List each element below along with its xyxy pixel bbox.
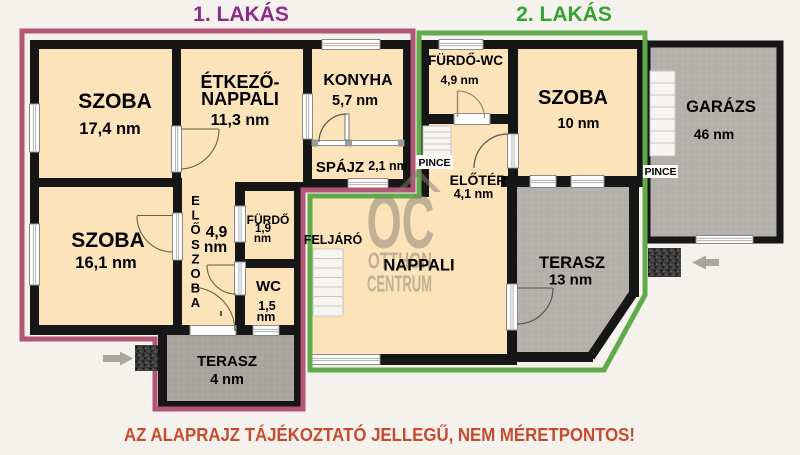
svg-text:PINCE: PINCE bbox=[644, 166, 676, 178]
svg-text:1. LAKÁS: 1. LAKÁS bbox=[193, 3, 289, 26]
svg-text:SZOBA: SZOBA bbox=[78, 90, 152, 113]
svg-text:SPÁJZ: SPÁJZ bbox=[316, 159, 364, 176]
svg-text:5,7 nm: 5,7 nm bbox=[332, 93, 378, 109]
svg-text:FÜRDŐ-WC: FÜRDŐ-WC bbox=[428, 53, 503, 68]
svg-text:nm: nm bbox=[204, 239, 227, 256]
svg-text:O: O bbox=[190, 266, 200, 281]
svg-text:TERASZ: TERASZ bbox=[197, 353, 257, 370]
svg-text:nm: nm bbox=[257, 310, 276, 324]
svg-text:AZ ALAPRAJZ TÁJÉKOZTATÓ JELLEG: AZ ALAPRAJZ TÁJÉKOZTATÓ JELLEGŰ, NEM MÉR… bbox=[124, 424, 635, 445]
svg-text:PINCE: PINCE bbox=[418, 157, 450, 169]
svg-text:11,3 nm: 11,3 nm bbox=[211, 112, 270, 129]
svg-text:NAPPALI: NAPPALI bbox=[201, 89, 279, 109]
svg-text:WC: WC bbox=[256, 278, 281, 295]
svg-text:16,1 nm: 16,1 nm bbox=[75, 254, 136, 272]
svg-text:4,9 nm: 4,9 nm bbox=[440, 73, 478, 87]
svg-text:17,4 nm: 17,4 nm bbox=[79, 120, 140, 138]
svg-text:GARÁZS: GARÁZS bbox=[686, 97, 756, 116]
svg-text:L: L bbox=[192, 208, 200, 223]
svg-text:ELŐTÉR: ELŐTÉR bbox=[450, 171, 507, 188]
svg-text:Z: Z bbox=[192, 251, 200, 266]
svg-text:4 nm: 4 nm bbox=[210, 372, 244, 388]
svg-text:TERASZ: TERASZ bbox=[539, 254, 605, 272]
svg-text:A: A bbox=[191, 295, 201, 310]
svg-text:10 nm: 10 nm bbox=[558, 116, 600, 132]
svg-text:Ő: Ő bbox=[190, 222, 200, 237]
svg-text:13 nm: 13 nm bbox=[549, 272, 592, 289]
svg-text:SZOBA: SZOBA bbox=[538, 87, 608, 109]
svg-text:2,1 nm: 2,1 nm bbox=[368, 159, 408, 173]
svg-text:SZOBA: SZOBA bbox=[71, 229, 145, 252]
svg-text:46 nm: 46 nm bbox=[694, 126, 734, 142]
svg-text:nm: nm bbox=[254, 233, 271, 245]
svg-text:FELJÁRÓ: FELJÁRÓ bbox=[304, 232, 363, 247]
svg-text:KONYHA: KONYHA bbox=[323, 72, 393, 89]
svg-text:B: B bbox=[191, 281, 200, 296]
svg-text:E: E bbox=[191, 193, 200, 208]
svg-text:4,1 nm: 4,1 nm bbox=[454, 187, 494, 201]
svg-text:S: S bbox=[191, 237, 200, 252]
svg-text:2. LAKÁS: 2. LAKÁS bbox=[516, 3, 612, 26]
svg-text:NAPPALI: NAPPALI bbox=[383, 257, 454, 275]
